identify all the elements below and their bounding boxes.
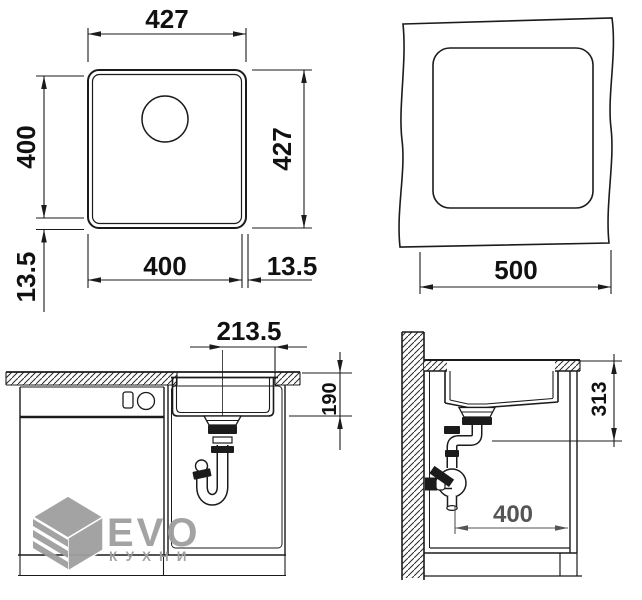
dim-label: 400	[11, 125, 41, 168]
countertop-left	[6, 372, 177, 385]
counter-side-left	[424, 360, 447, 371]
dim-label: 190	[319, 382, 341, 415]
dim-label: 313	[588, 381, 611, 416]
dim-label: 427	[145, 4, 188, 34]
countertop-right	[275, 372, 300, 385]
dim-label: 427	[267, 127, 297, 170]
dim-label: 213.5	[216, 316, 281, 346]
brand-subtitle: КУХНИ	[109, 549, 194, 564]
dim-label: 13.5	[11, 252, 41, 303]
dim-label: 13.5	[267, 251, 318, 281]
wall	[402, 332, 424, 578]
sink-technical-drawing: 427 427 400 13.5	[0, 0, 642, 600]
dim-label: 500	[494, 255, 537, 285]
dim-label: 400	[143, 251, 186, 281]
counter-side-right	[555, 360, 580, 371]
dim-label: 400	[493, 501, 533, 528]
